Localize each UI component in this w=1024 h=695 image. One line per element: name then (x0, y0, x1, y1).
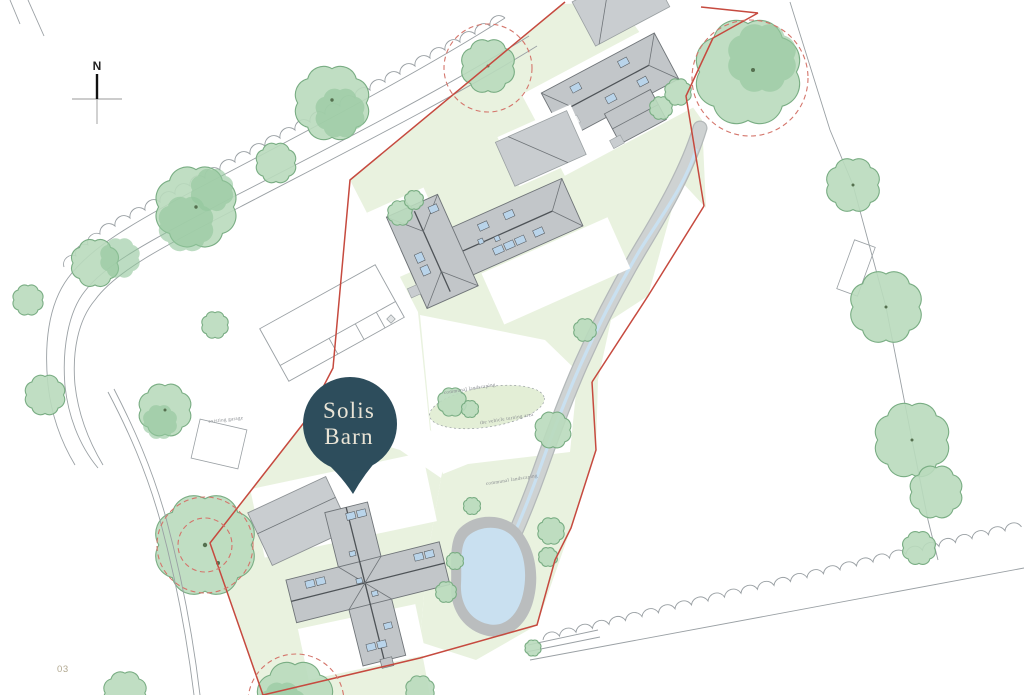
tree (436, 582, 457, 603)
pin-label-line1: Solis (323, 398, 375, 423)
skylight (371, 590, 378, 596)
tree (447, 553, 464, 570)
skylight (349, 550, 356, 556)
tree (256, 143, 295, 182)
north-label: N (93, 59, 102, 73)
tree (104, 672, 146, 695)
existing-building-outline (260, 265, 405, 381)
annotation-existing-garage: existing garage (208, 416, 244, 425)
existing-garage-rect (191, 419, 247, 469)
tree (462, 401, 479, 418)
corner-mark-2 (10, 0, 20, 24)
skylight (356, 578, 363, 584)
pin-label-line2: Barn (324, 424, 374, 449)
boundary-top (701, 7, 758, 13)
tree (13, 285, 43, 315)
tree (405, 191, 424, 210)
pond-water (461, 528, 525, 625)
corner-mark-1 (28, 0, 44, 36)
tree (464, 498, 481, 515)
existing-garage-outline (191, 419, 247, 469)
tree (202, 312, 228, 338)
fence-bottom-right (530, 568, 1024, 660)
site-plan-map: existing garage communal landscaping the… (0, 0, 1024, 695)
north-arrow-icon: N (72, 59, 122, 124)
tree (574, 319, 597, 342)
tree (525, 640, 541, 656)
site-plan-page: existing garage communal landscaping the… (0, 0, 1024, 695)
page-number: 03 (57, 664, 69, 675)
tree (903, 532, 936, 565)
tree (25, 375, 64, 414)
